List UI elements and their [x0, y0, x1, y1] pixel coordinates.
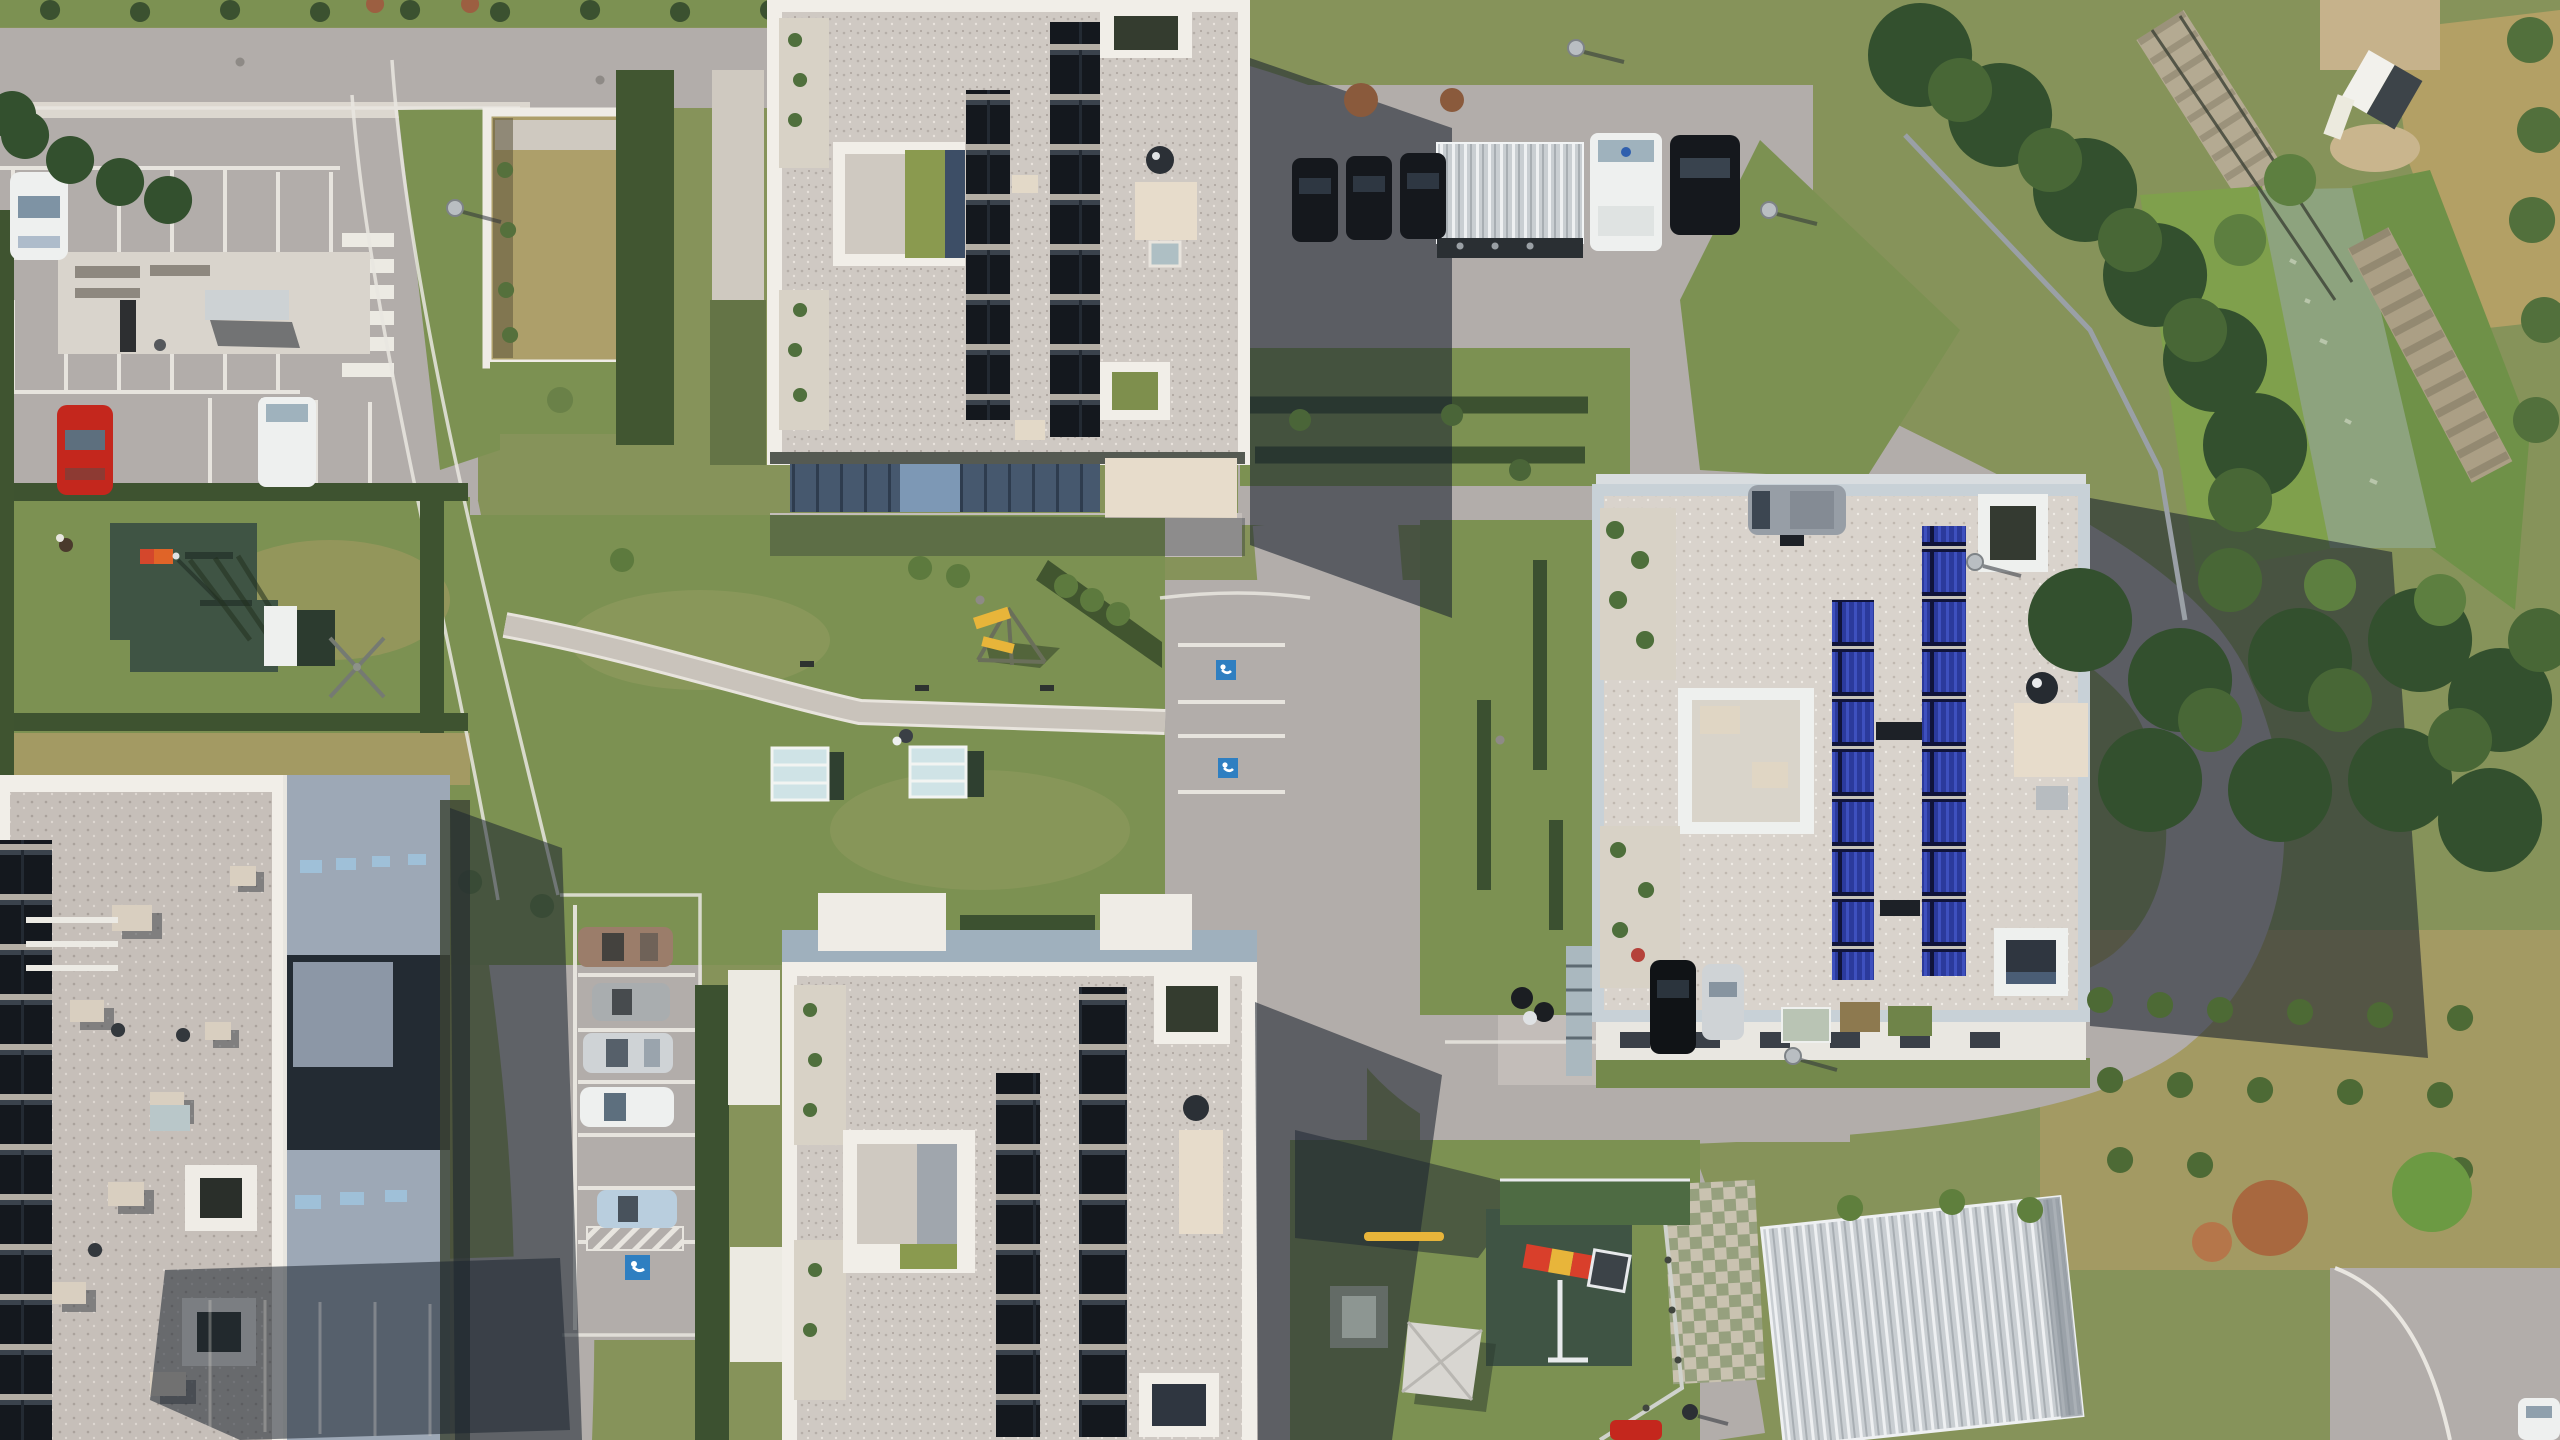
- sunken-garden: [487, 70, 766, 465]
- shopping-bag: [893, 737, 902, 746]
- sand-patch: [2330, 124, 2420, 172]
- bl-solar-row-west: [0, 840, 52, 1440]
- rb-lightwell-se: [1994, 928, 2068, 996]
- car-black-rb: [1650, 960, 1696, 1054]
- car-white-corner: [2518, 1398, 2560, 1440]
- path-corridor: [712, 70, 764, 300]
- lamp-head: [1761, 202, 1777, 218]
- tree-grate: [1344, 83, 1378, 117]
- building-top-center: [767, 0, 1250, 518]
- car-dark-by-shelter: [1670, 135, 1740, 235]
- satellite-dish: [2026, 672, 2058, 704]
- canopy-bench-roof: [205, 290, 289, 320]
- tc-penthouse: [1135, 182, 1197, 240]
- car-dark-plaza: [1400, 153, 1446, 239]
- car-red-bottom: [1610, 1420, 1662, 1440]
- tc-lightwell-se: [1100, 362, 1170, 420]
- no-parking-hatch: [587, 1227, 683, 1250]
- litter-bin: [154, 339, 166, 351]
- car-bronze: [578, 927, 673, 967]
- pram: [56, 534, 64, 542]
- shed-roof: [264, 606, 297, 666]
- tc-inner-courtyard: [833, 142, 965, 266]
- info-pillar: [120, 300, 136, 352]
- disabled-bay-marker: [625, 1255, 650, 1280]
- tc-terrace-nw: [779, 18, 829, 168]
- garden-bed: [1888, 1006, 1932, 1036]
- canopy-glass: [772, 748, 828, 800]
- tc-glass-light-panel: [900, 464, 960, 512]
- bc-west-porch: [728, 970, 780, 1105]
- hedge-left-edge: [0, 210, 14, 785]
- bl-glazing-panel: [293, 962, 393, 1067]
- green-bush-patch: [2392, 1152, 2472, 1232]
- tc-lightwell-ne: [1100, 8, 1192, 58]
- bike-shelter-north: [1437, 143, 1583, 258]
- rubber-mat: [110, 523, 278, 672]
- carport-southeast: [1762, 1197, 2083, 1440]
- bc-entrance-canopy: [1100, 894, 1192, 950]
- windsock-tip: [140, 549, 154, 564]
- lamp-head: [1785, 1048, 1801, 1064]
- disabled-bay-marker: [1218, 758, 1238, 778]
- tc-skylight: [1150, 242, 1180, 266]
- hedge-column-east: [420, 497, 444, 733]
- canopy-shadow: [966, 751, 984, 797]
- car-silver-rb: [1702, 964, 1744, 1040]
- van-white-by-shelter: [1590, 133, 1662, 251]
- hedge-column-bc-west: [695, 985, 729, 1440]
- bc-terrace-nw: [794, 985, 846, 1145]
- tc-south-pad: [1105, 458, 1237, 518]
- tree-grate: [1440, 88, 1464, 112]
- lamp-head: [1568, 40, 1584, 56]
- bc-inner-courtyard: [843, 1130, 975, 1273]
- bc-entrance-canopy: [818, 893, 946, 951]
- rb-equipment-pad: [2014, 703, 2088, 777]
- car-lightblue: [597, 1190, 677, 1228]
- bc-west-porch: [730, 1247, 782, 1362]
- bc-solar-column-east: [1079, 987, 1127, 1437]
- car-white: [10, 172, 68, 260]
- autumn-shrub-small: [2192, 1222, 2232, 1262]
- glass-skylight: [150, 1105, 190, 1131]
- rb-blue-solar-east: [1922, 526, 1966, 976]
- aerial-photograph: [0, 0, 2560, 1440]
- dish-feed: [2032, 678, 2042, 688]
- sunken-garden-gravel: [495, 120, 627, 150]
- rb-lightwell-ne: [1978, 494, 2048, 572]
- skylight-frame: [185, 1165, 257, 1231]
- car-gray: [592, 983, 670, 1021]
- seesaw: [1364, 1232, 1444, 1241]
- building-bottom-center: [728, 893, 1257, 1440]
- garden-strip-south-facade: [1596, 1058, 2090, 1088]
- autumn-shrub: [2232, 1180, 2308, 1256]
- disabled-bay-marker: [1216, 660, 1236, 680]
- hedge-corridor-low: [710, 300, 766, 465]
- glass-canopy: [772, 748, 844, 800]
- patio-furniture: [1631, 948, 1645, 962]
- minivan-gray: [1748, 485, 1846, 535]
- shadow-parking-southwest: [150, 1258, 570, 1440]
- car-red: [57, 405, 113, 495]
- car-white-bays: [580, 1087, 674, 1127]
- dish-feed: [1152, 152, 1160, 160]
- van-logo: [1621, 147, 1631, 157]
- tc-solar-column-west: [966, 90, 1010, 420]
- lamp-head-dark: [1682, 1404, 1698, 1420]
- satellite-dish: [1146, 146, 1174, 174]
- rb-gray-pad: [2036, 786, 2068, 810]
- bc-terrace-sw: [794, 1240, 846, 1400]
- car-dark-plaza: [1292, 158, 1338, 242]
- rb-blue-solar-west: [1832, 600, 1874, 980]
- canopy-glass: [910, 747, 966, 797]
- satellite-dish: [1183, 1095, 1209, 1121]
- shed-dark-cover: [297, 610, 335, 666]
- bc-lightwell-se: [1139, 1373, 1219, 1437]
- sunken-garden-shade: [493, 118, 513, 358]
- car-silver: [583, 1033, 673, 1073]
- rb-west-courtyard: [1678, 688, 1814, 834]
- picnic-table: [1330, 1286, 1388, 1348]
- flag-pole: [173, 553, 180, 560]
- canopy-shadow: [210, 320, 300, 348]
- greenhouse: [1782, 1008, 1830, 1042]
- lamp-head: [1967, 554, 1983, 570]
- carport-roof: [1762, 1197, 2083, 1440]
- lamp-head: [447, 200, 463, 216]
- bench-terrace: [58, 252, 370, 354]
- bc-lightwell-ne: [1154, 976, 1230, 1044]
- tc-solar-column-east: [1050, 22, 1100, 437]
- shadow-south-walk: [770, 515, 1245, 556]
- dryer-pole: [353, 663, 361, 671]
- glass-canopy: [910, 747, 984, 797]
- sports-court: [1500, 1180, 1690, 1225]
- shelter-roof: [1437, 143, 1583, 243]
- garden-bed: [1840, 1002, 1880, 1032]
- car-dark-plaza: [1346, 156, 1392, 240]
- aerial-photo-canvas: [0, 0, 2560, 1440]
- bc-solar-column-west: [996, 1073, 1040, 1437]
- shadow-top-center-building: [1250, 58, 1452, 618]
- van-white: [258, 397, 316, 487]
- bc-penthouse: [1179, 1130, 1223, 1234]
